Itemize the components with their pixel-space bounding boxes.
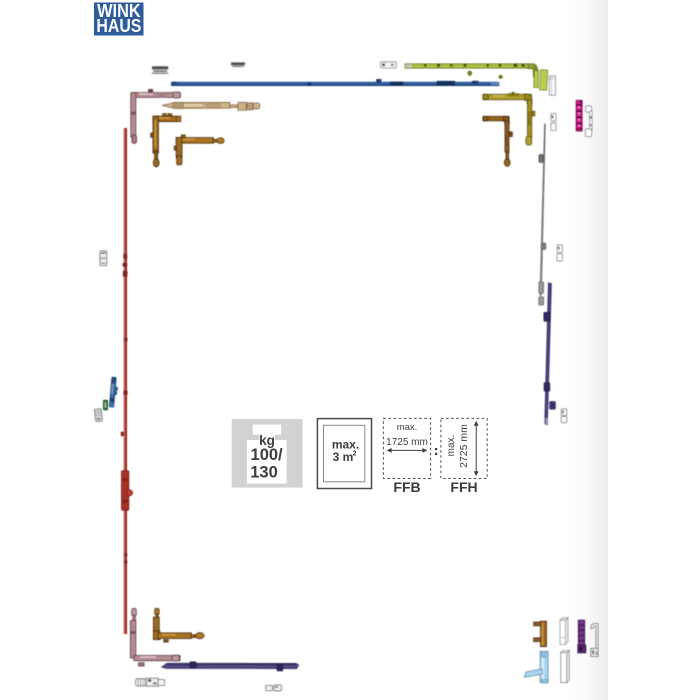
svg-text:max.: max. bbox=[397, 422, 418, 433]
svg-text:HAUS: HAUS bbox=[96, 15, 141, 36]
svg-text:3 m: 3 m bbox=[333, 450, 354, 464]
svg-text:100/: 100/ bbox=[251, 446, 284, 464]
svg-text:2: 2 bbox=[353, 451, 357, 458]
svg-text:1725 mm: 1725 mm bbox=[386, 437, 428, 448]
svg-text:FFB: FFB bbox=[393, 479, 420, 495]
svg-text:2725 mm: 2725 mm bbox=[458, 424, 470, 468]
svg-text:FFH: FFH bbox=[450, 479, 477, 495]
svg-text:130: 130 bbox=[250, 463, 278, 481]
svg-text:max.: max. bbox=[446, 435, 457, 457]
